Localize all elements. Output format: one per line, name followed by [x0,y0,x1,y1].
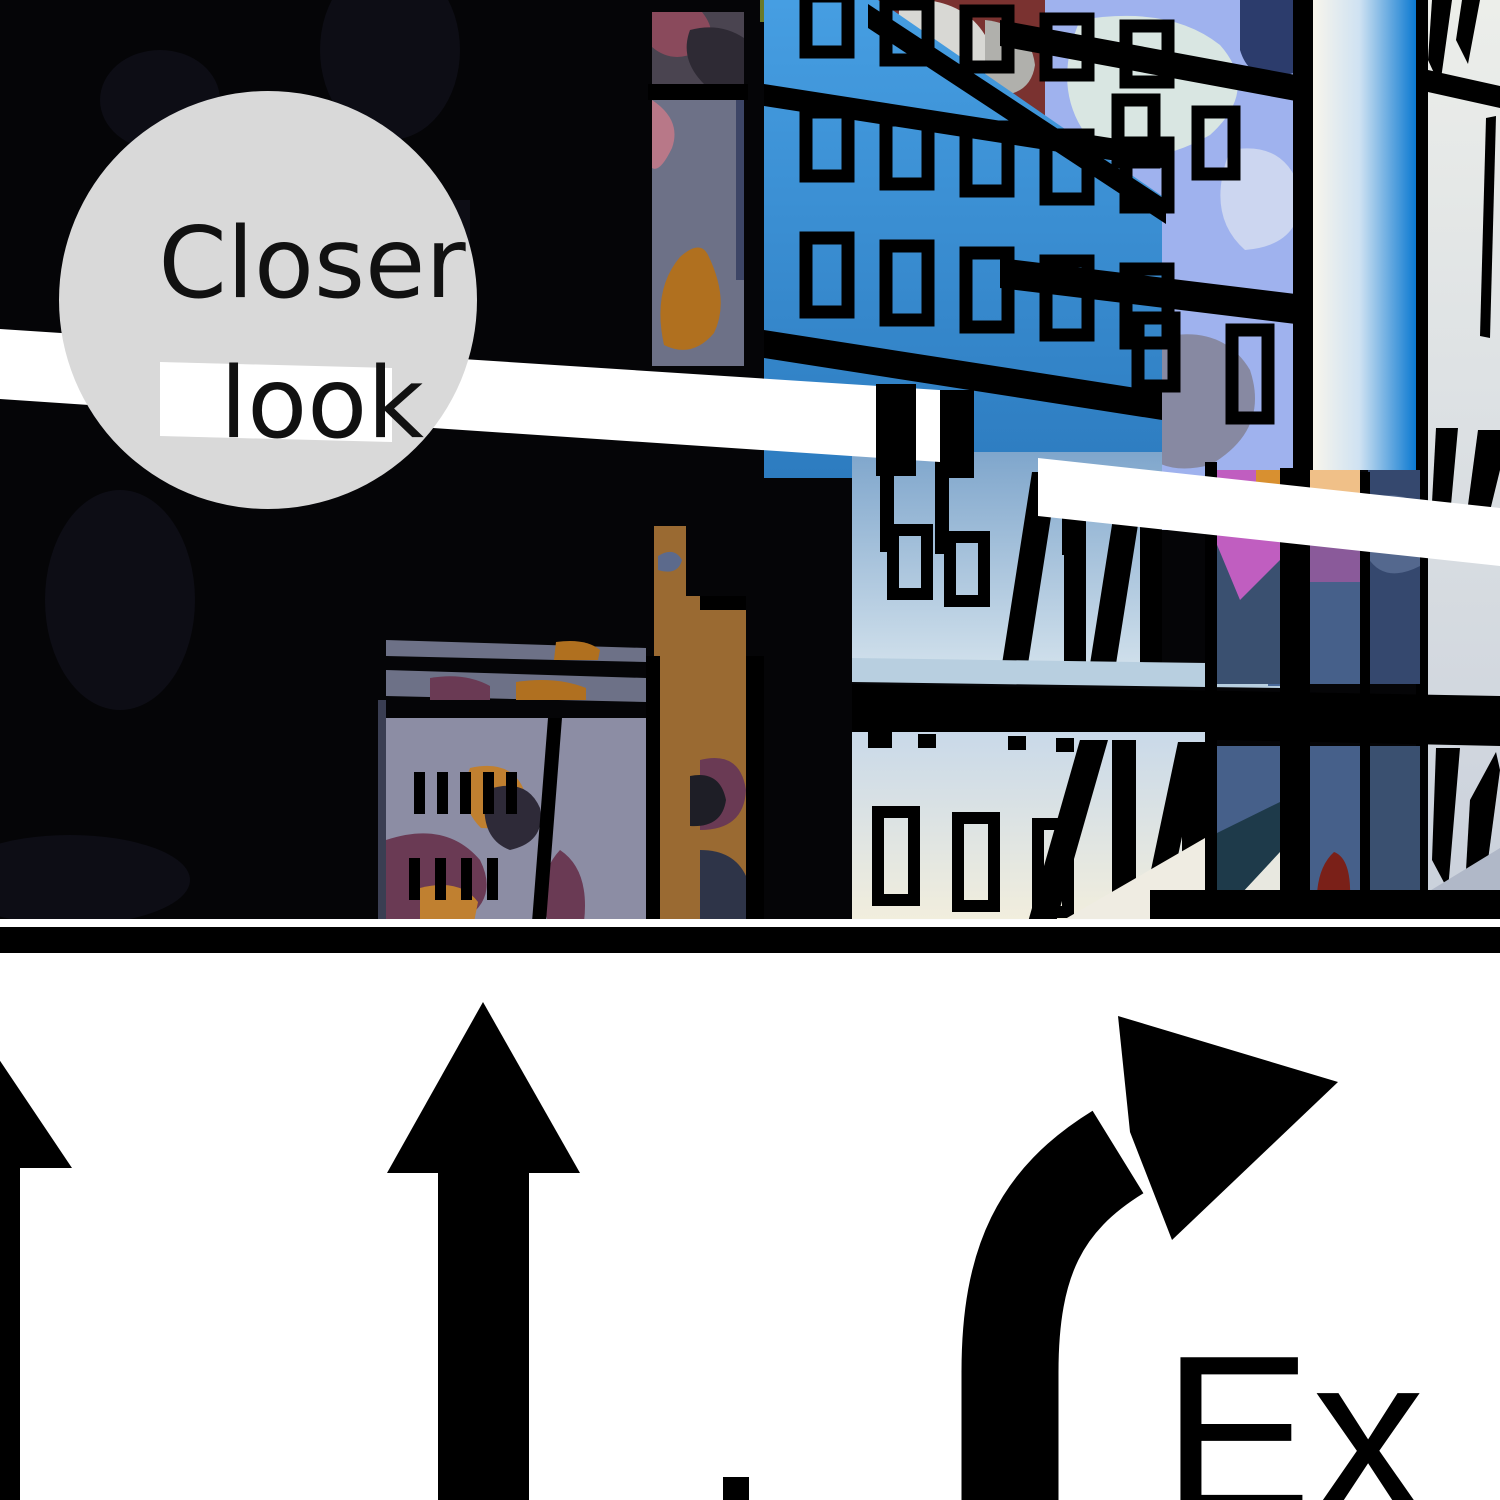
beam-post-1 [876,384,916,476]
closer-look-badge: Closer look [59,91,477,509]
black-band [0,927,1500,953]
artwork-svg: Closer look Ex [0,0,1500,1500]
mullion-vertical [1293,0,1313,530]
badge-line1: Closer [158,207,466,321]
highway-sign: Ex [0,953,1500,1500]
lavender-wall [378,640,646,922]
exit-text: Ex [1162,1308,1425,1500]
thin-white-line [0,919,1500,927]
divider [0,919,1500,953]
poster-detail-image: Closer look Ex [0,0,1500,1500]
left-pane-column [648,12,748,366]
beam-post-2 [940,390,974,478]
glass-tower [1313,0,1416,470]
badge-line2: look [220,347,424,461]
right-gray-building [1428,0,1500,935]
letter-fragment-bar [723,1477,749,1500]
